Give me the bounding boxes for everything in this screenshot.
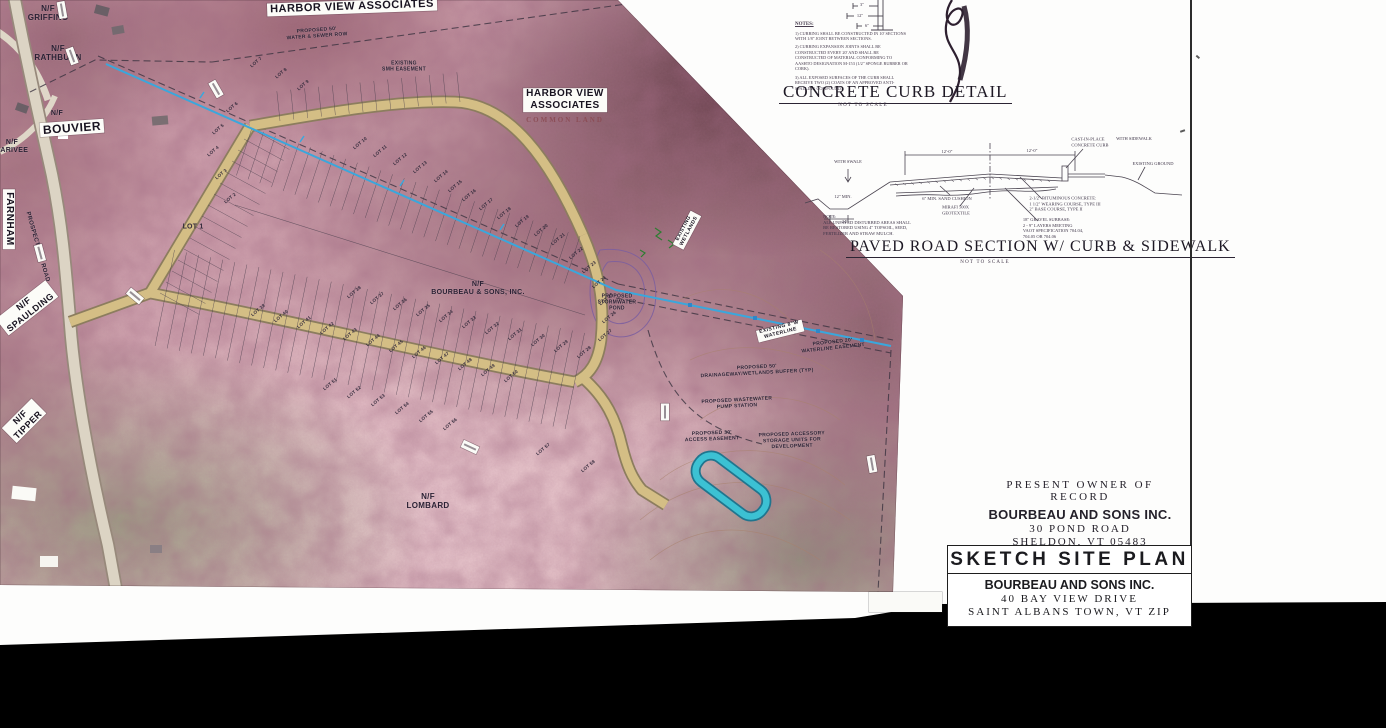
detail-callout: 3" (860, 2, 864, 8)
stray-mark (1196, 55, 1200, 59)
detail-callout: 2-1/2" BITUMINOUS CONCRETE: 1 1/2" WEARI… (1029, 196, 1100, 213)
detail-callout: 12'-0" (1027, 148, 1038, 154)
aerial-photo: N/F GRIFFINGN/F RATHBURNN/FBOUVIERN/F LA… (0, 0, 910, 600)
detail-callout: 6" (865, 23, 869, 29)
detail-callout: NOTE: ALL UNPAVED DISTURBED AREAS SHALL … (823, 214, 911, 237)
title-block-name: BOURBEAU AND SONS INC. (948, 578, 1191, 592)
detail-callout: WITH SIDEWALK (1116, 136, 1152, 142)
detail-callout: 12'-0" (942, 149, 953, 155)
detail-callout: 12" (857, 13, 863, 19)
title-block: SKETCH SITE PLAN BOURBEAU AND SONS INC. … (947, 545, 1192, 627)
detail-callout: 12" MIN. (834, 194, 851, 200)
curb-notes-heading: NOTES: (795, 22, 909, 29)
owner-name: BOURBEAU AND SONS INC. (982, 507, 1178, 522)
detail-callout: MIRAFI 500X GEOTEXTILE (942, 204, 970, 215)
curb-detail-scale: NOT TO SCALE (838, 103, 887, 108)
title-block-address2: SAINT ALBANS TOWN, VT ZIP (948, 606, 1191, 618)
owner-heading: PRESENT OWNER OF RECORD (982, 479, 1178, 503)
scanned-site-plan-sheet: N/F GRIFFINGN/F RATHBURNN/FBOUVIERN/F LA… (0, 0, 1386, 728)
detail-callout: 18" GRAVEL SUBBASE: 2 - 9" LAYERS MEETIN… (1023, 217, 1083, 240)
detail-callout: 6" MIN. SAND CUSHION (922, 196, 972, 202)
detail-callout: CAST-IN-PLACE CONCRETE CURB (1071, 136, 1108, 147)
curb-note: 2) CURBING EXPANSION JOINTS SHALL BE CON… (795, 44, 909, 72)
owner-of-record-block: PRESENT OWNER OF RECORD BOURBEAU AND SON… (982, 479, 1178, 548)
road-detail-title: PAVED ROAD SECTION W/ CURB & SIDEWALK (846, 238, 1235, 258)
sheet-title: SKETCH SITE PLAN (948, 546, 1191, 574)
detail-callout: EXISTING GROUND (1132, 161, 1173, 167)
title-block-address1: 40 BAY VIEW DRIVE (948, 593, 1191, 605)
sheet-border-line (1190, 0, 1192, 603)
sheet-notch-box (869, 592, 942, 612)
owner-address1: 30 POND ROAD (982, 523, 1178, 535)
site-plan-linework (0, 0, 910, 600)
curb-note: 1) CURBING SHALL BE CONSTRUCTED IN 10' S… (795, 31, 909, 42)
detail-callout: WITH SWALE (834, 159, 862, 165)
curb-detail-title: CONCRETE CURB DETAIL (779, 82, 1012, 104)
road-detail-scale: NOT TO SCALE (960, 260, 1009, 265)
